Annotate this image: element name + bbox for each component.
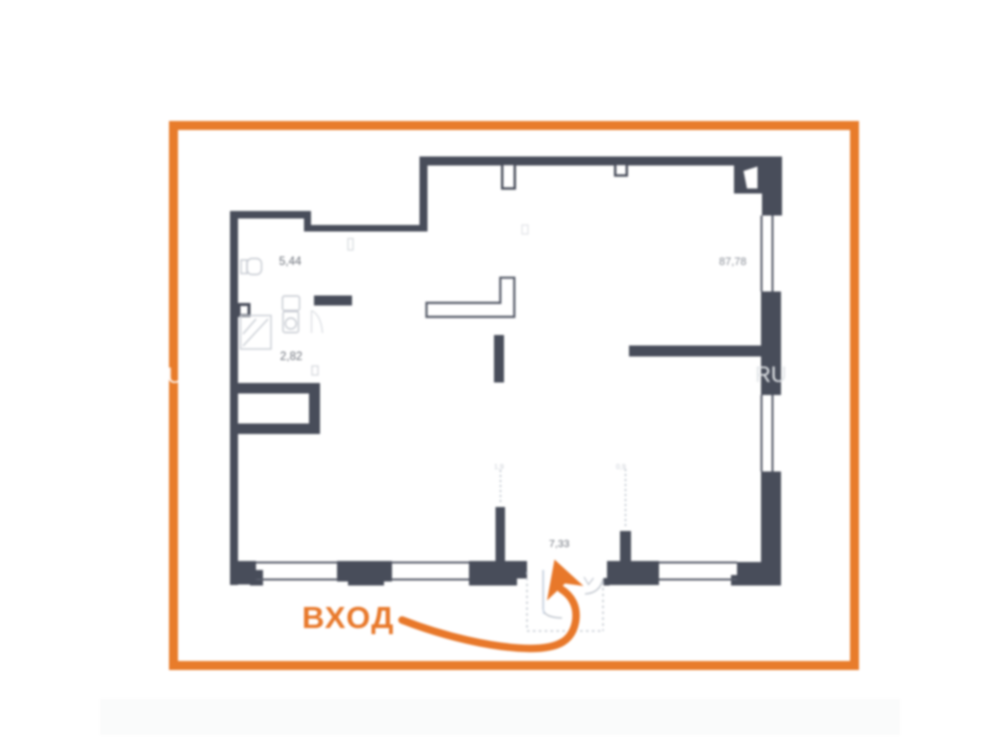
svg-text:U: U <box>167 363 183 388</box>
svg-text:ВХОД: ВХОД <box>302 600 395 635</box>
svg-text:7,33: 7,33 <box>549 538 570 550</box>
svg-text:87,78: 87,78 <box>719 256 747 268</box>
svg-text:2,82: 2,82 <box>280 351 302 363</box>
svg-text:RU: RU <box>755 362 787 387</box>
svg-text:1,9: 1,9 <box>494 464 504 471</box>
svg-text:0,9: 0,9 <box>616 464 626 471</box>
svg-text:5,44: 5,44 <box>279 256 302 268</box>
